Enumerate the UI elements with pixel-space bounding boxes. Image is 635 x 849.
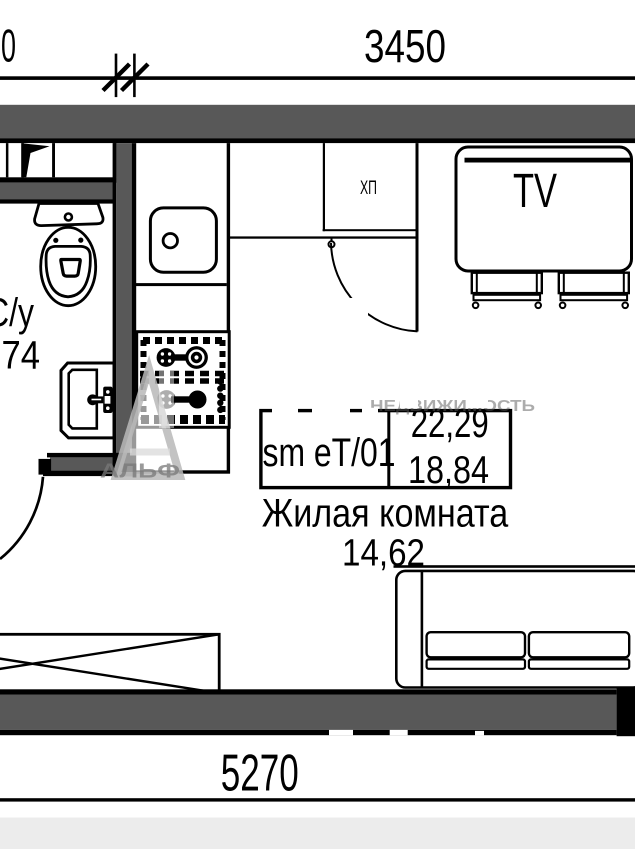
- svg-text:НЕДВИЖИМОСТЬ: НЕДВИЖИМОСТЬ: [370, 398, 535, 415]
- svg-text:18,84: 18,84: [408, 449, 489, 492]
- svg-text:С/у: С/у: [0, 291, 34, 335]
- svg-text:74: 74: [2, 334, 41, 378]
- svg-text:Жилая комната: Жилая комната: [262, 492, 509, 536]
- svg-text:ХП: ХП: [360, 177, 377, 199]
- svg-text:АЛЬФ: АЛЬФ: [100, 461, 180, 483]
- svg-text:14,62: 14,62: [342, 533, 425, 575]
- svg-text:3450: 3450: [364, 20, 446, 72]
- svg-text:TV: TV: [513, 164, 557, 218]
- svg-text:sm eT/01: sm eT/01: [263, 431, 396, 475]
- svg-text:0: 0: [1, 20, 16, 72]
- svg-text:5270: 5270: [221, 745, 299, 803]
